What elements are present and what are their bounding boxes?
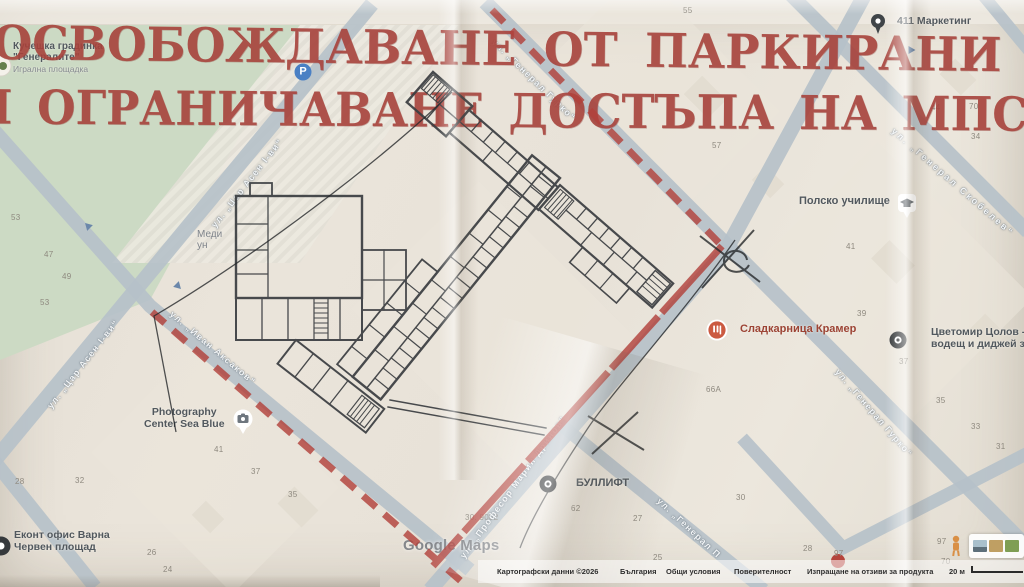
scale-label: 20 м (949, 567, 965, 576)
floor-plan (236, 72, 675, 435)
route-dashed-gurko (492, 10, 722, 246)
hand-drawn-overlay (0, 0, 1024, 587)
pen-scribbles (154, 92, 760, 548)
floor-plan-wall-line (388, 400, 546, 435)
thumbnail-terrain (989, 540, 1003, 552)
floor-plan-long-band (337, 143, 560, 400)
thumbnail-park (1005, 540, 1019, 552)
scale-bar-tick (971, 566, 973, 573)
imagery-thumbnails-panel (969, 534, 1024, 558)
scale-bar (971, 571, 1023, 573)
floor-plan-north-wing (398, 72, 675, 323)
pen-line-west (154, 92, 452, 432)
photographed-map-poster: ул. „Цар Асен I-ви“ ул. „Цар Асен I-ви“ … (0, 0, 1024, 587)
route-solid-drinov (433, 246, 722, 566)
x-mark-south (588, 412, 644, 454)
pegman-icon (949, 534, 963, 558)
attribution-feedback: Изпращане на отзиви за продукта (807, 567, 933, 576)
attribution-country: България (620, 567, 657, 576)
attribution-data: Картографски данни ©2026 (497, 567, 598, 576)
attribution-privacy: Поверителност (734, 567, 791, 576)
route-dashed-aksakov (152, 312, 462, 582)
floor-plan-left-block (236, 183, 406, 340)
route-red-line (152, 10, 722, 582)
attribution-terms: Общи условия (666, 567, 721, 576)
thumbnail-sky (973, 540, 987, 552)
